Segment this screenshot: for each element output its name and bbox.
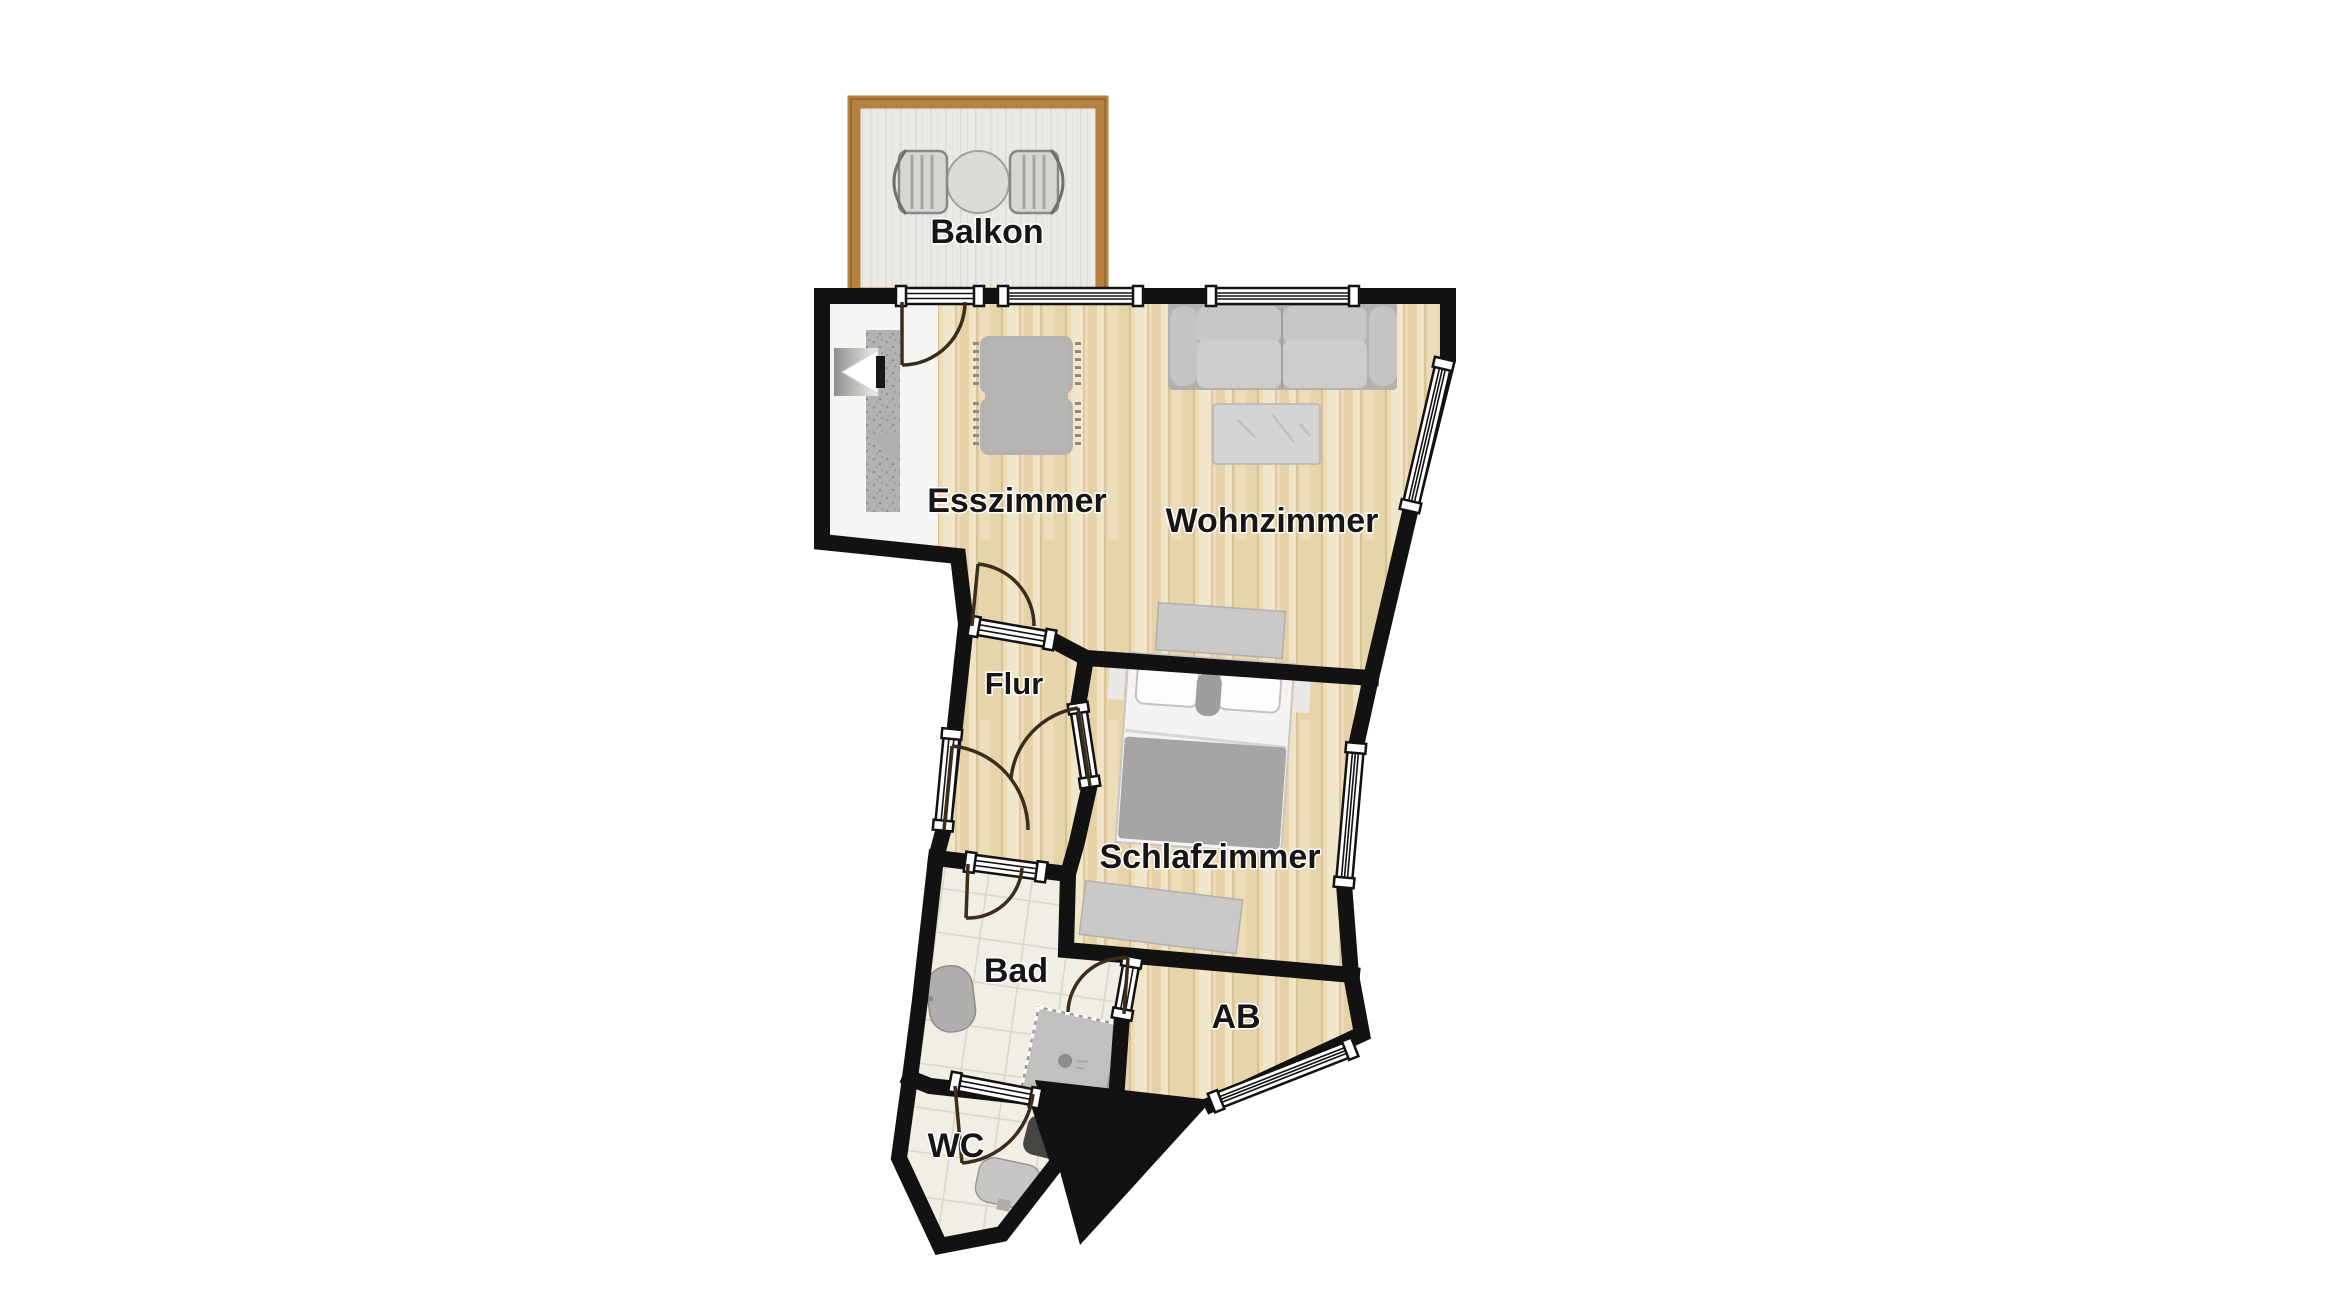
label-wc: WC: [928, 1127, 985, 1165]
dining-table: [976, 336, 1078, 455]
balcony-chair-right: [1010, 150, 1063, 214]
balcony-table: [947, 151, 1009, 213]
bed: [1098, 651, 1313, 855]
window-wohnzimmer-top: [1206, 286, 1359, 306]
balcony: [851, 99, 1105, 297]
sideboard-wohnzimmer: [1155, 603, 1285, 659]
staircase-area: [830, 302, 938, 548]
sofa: [1168, 302, 1397, 390]
floor-plan-canvas: Balkon Esszimmer Wohnzimmer Flur Schlafz…: [0, 0, 2339, 1315]
balcony-door-window: [896, 286, 984, 306]
blanket: [1118, 736, 1287, 849]
label-schlafzimmer: Schlafzimmer: [1099, 838, 1320, 876]
label-ab: AB: [1211, 998, 1260, 1036]
accent-pillow: [1195, 671, 1223, 717]
label-balkon: Balkon: [930, 213, 1043, 251]
balcony-chair-left: [894, 150, 947, 214]
window-esszimmer-top: [998, 286, 1143, 306]
label-esszimmer: Esszimmer: [927, 482, 1107, 520]
wall-wedge: [1035, 1080, 1212, 1245]
coffee-table: [1213, 404, 1320, 464]
floor-plan: Balkon Esszimmer Wohnzimmer Flur Schlafz…: [0, 0, 2339, 1315]
label-flur: Flur: [985, 666, 1044, 701]
label-wohnzimmer: Wohnzimmer: [1166, 502, 1379, 540]
stair-arrow-bar: [876, 356, 885, 388]
label-bad: Bad: [984, 952, 1048, 990]
